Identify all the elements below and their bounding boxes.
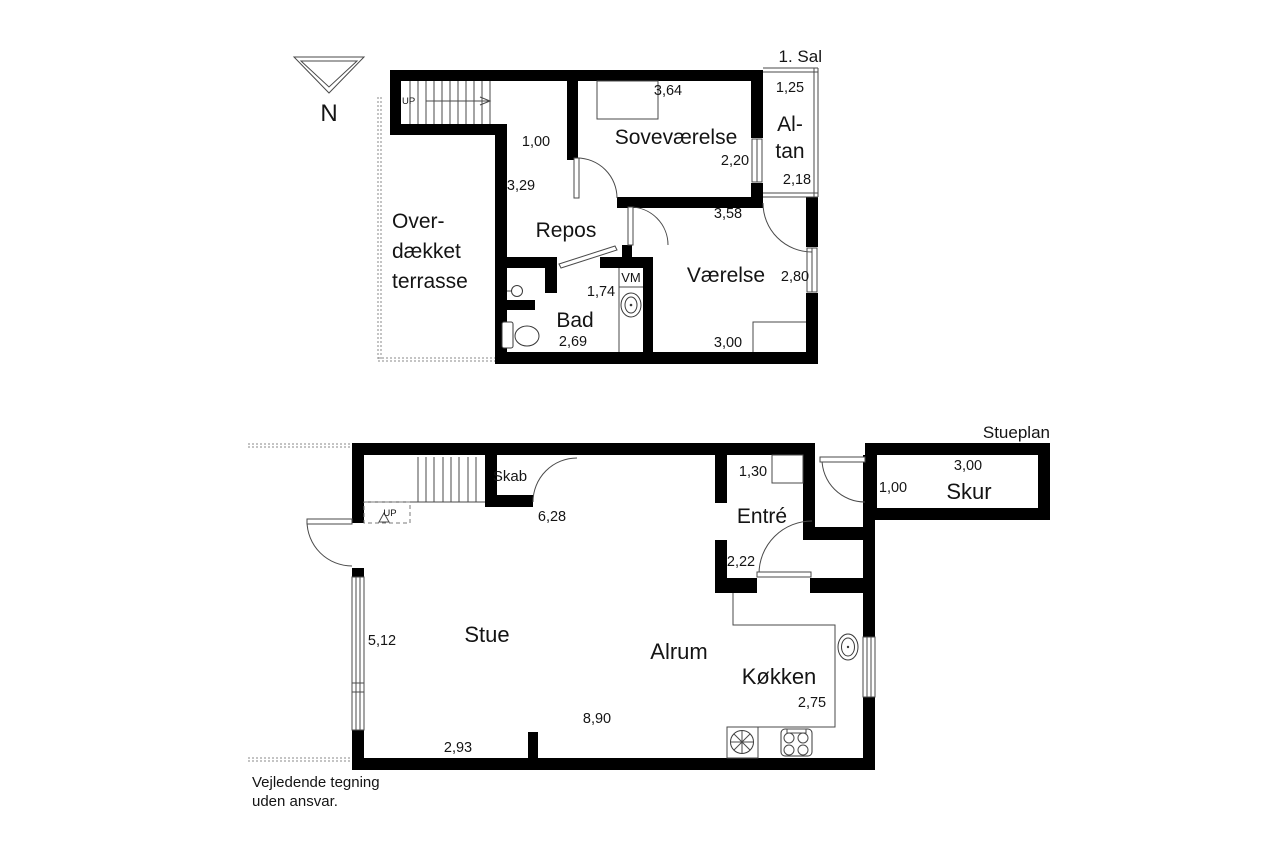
repos-corridor-door xyxy=(628,207,668,245)
kitchen-basin-icon xyxy=(838,634,858,660)
dim-entre-width: 1,30 xyxy=(739,464,767,480)
room-label-skur: Skur xyxy=(946,479,991,504)
room-label-alrum: Alrum xyxy=(650,639,707,664)
dim-bad-inner: 1,74 xyxy=(587,284,615,300)
sovevaerelse-wardrobe xyxy=(597,81,658,119)
room-label-entre: Entré xyxy=(737,505,787,528)
dim-stue-width: 2,93 xyxy=(444,740,472,756)
entrance-door xyxy=(820,457,865,502)
toilet-icon xyxy=(502,322,539,348)
dim-skur-depth: 1,00 xyxy=(879,480,907,496)
north-label: N xyxy=(320,100,337,127)
stove-icon xyxy=(781,729,812,756)
upper-floor-walls xyxy=(390,70,818,364)
ground-floor-walls xyxy=(352,443,1050,770)
dim-skur-width: 3,00 xyxy=(954,458,982,474)
koekken-window xyxy=(863,637,875,697)
upper-stairs xyxy=(410,81,490,124)
dim-altan-depth: 2,18 xyxy=(783,172,811,188)
floor-plan-canvas: N 1. Sal xyxy=(0,0,1280,853)
dim-vaerelse-depth: 2,80 xyxy=(781,269,809,285)
upper-floor-title: 1. Sal xyxy=(779,47,822,66)
dim-skab-width: 6,28 xyxy=(538,509,566,525)
dim-entre-depth: 2,22 xyxy=(727,554,755,570)
bath-sink-icon xyxy=(507,286,523,297)
dim-vaerelse-top: 3,58 xyxy=(714,206,742,222)
sovevaerelse-altan-window xyxy=(751,138,763,183)
sovevaerelse-door xyxy=(574,158,617,198)
vaerelse-closet xyxy=(753,322,806,352)
vaerelse-door xyxy=(763,203,812,252)
ground-floor-title: Stueplan xyxy=(983,423,1050,442)
room-label-altan-2: tan xyxy=(775,140,804,163)
room-label-altan-1: Al- xyxy=(777,113,803,136)
floor-plan-page: N 1. Sal xyxy=(0,0,1280,853)
disclaimer-line1: Vejledende tegning xyxy=(252,774,380,791)
dim-hall-width: 1,00 xyxy=(522,134,550,150)
dim-stue-window: 5,12 xyxy=(368,633,396,649)
room-label-sovevaerelse: Soveværelse xyxy=(615,126,738,149)
dim-hall-length: 3,29 xyxy=(507,178,535,194)
dim-sovevaerelse-depth: 2,20 xyxy=(721,153,749,169)
upper-stairs-up-label: UP xyxy=(402,96,415,107)
skab-door xyxy=(533,458,577,502)
room-label-skab: Skab xyxy=(493,468,527,485)
ground-stairs-up-label: UP xyxy=(383,508,396,519)
dim-bad-width: 2,69 xyxy=(559,334,587,350)
entre-closet xyxy=(772,455,803,483)
room-label-repos: Repos xyxy=(536,219,597,242)
dim-alrum-length: 8,90 xyxy=(583,711,611,727)
room-label-stue: Stue xyxy=(464,622,509,647)
terrace-door xyxy=(307,519,352,566)
room-label-terrace-3: terrasse xyxy=(392,270,468,293)
ground-dotted-boundary xyxy=(248,444,352,761)
stue-window xyxy=(352,577,364,730)
dim-altan-width: 1,25 xyxy=(776,80,804,96)
dim-koekken-depth: 2,75 xyxy=(798,695,826,711)
room-label-bad: Bad xyxy=(556,309,593,332)
dim-vaerelse-bottom: 3,00 xyxy=(714,335,742,351)
disclaimer-line2: uden ansvar. xyxy=(252,793,338,810)
room-label-vaerelse: Værelse xyxy=(687,264,765,287)
room-label-terrace-1: Over- xyxy=(392,210,445,233)
kitchen-sink-icon xyxy=(731,731,754,754)
room-label-vm: VM xyxy=(621,270,641,285)
north-arrow-icon xyxy=(294,57,364,93)
room-label-terrace-2: dækket xyxy=(392,240,461,263)
room-label-koekken: Køkken xyxy=(742,664,817,689)
dim-sovevaerelse-width: 3,64 xyxy=(654,83,682,99)
ground-stairs xyxy=(364,457,485,523)
